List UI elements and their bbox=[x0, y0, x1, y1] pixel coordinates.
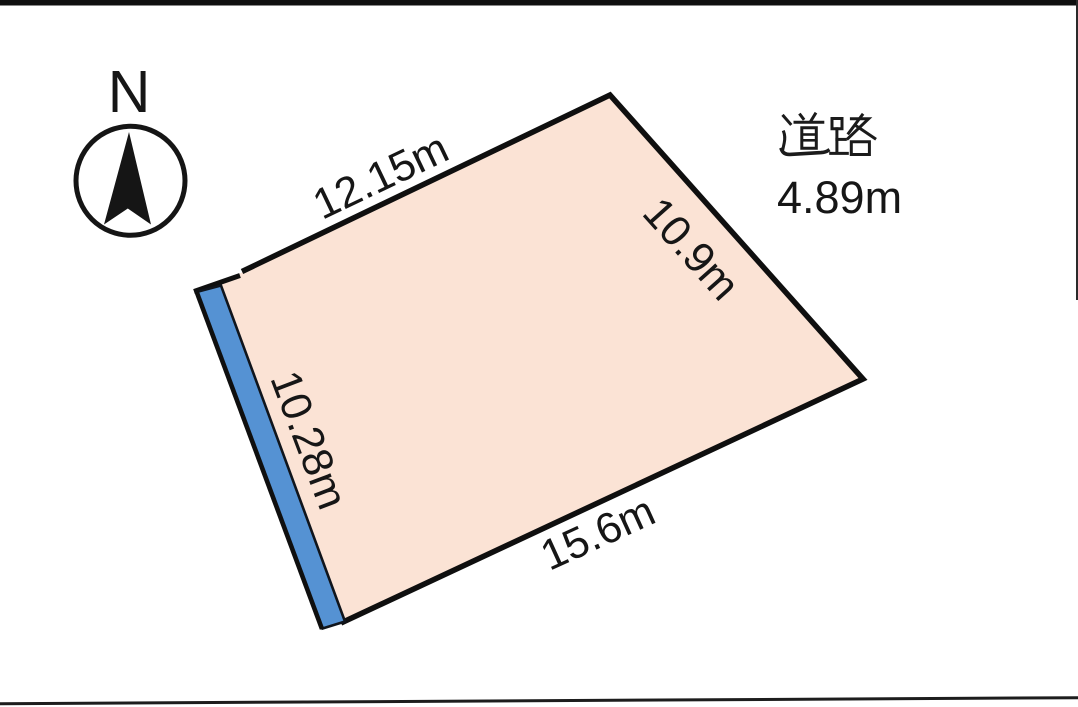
svg-text:4.89m: 4.89m bbox=[777, 172, 902, 223]
svg-text:N: N bbox=[108, 59, 151, 125]
